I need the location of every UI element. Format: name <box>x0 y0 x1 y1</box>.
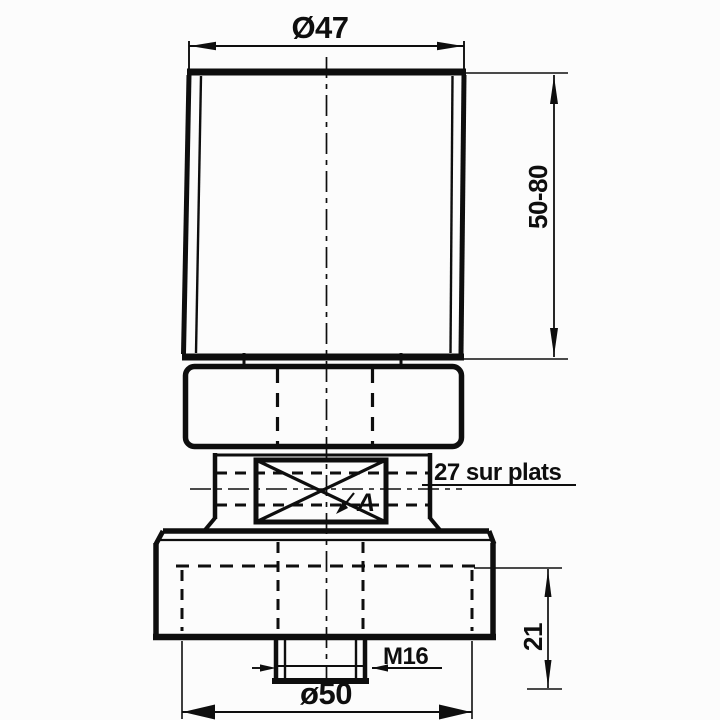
bore-diameter-label: ø50 <box>300 676 352 711</box>
technical-drawing-page: Ø47 50-80 <box>0 0 720 720</box>
height-range-label: 50-80 <box>523 165 553 229</box>
label-flats: 27 sur plats <box>422 459 576 486</box>
arrowhead-up <box>545 570 552 597</box>
top-diameter-label: Ø47 <box>291 10 348 45</box>
dim-height-range: 50-80 <box>464 73 568 359</box>
detail-marker-label: A <box>356 489 375 517</box>
part-housing-block <box>186 353 462 447</box>
arrowhead-down <box>550 328 558 356</box>
label-detail-a: A <box>336 489 375 517</box>
arrowhead-down <box>545 660 552 687</box>
arrowhead-left <box>190 42 216 50</box>
cavity-height-label: 21 <box>518 623 548 651</box>
dim-cavity-height: 21 <box>474 568 562 689</box>
part-base <box>153 531 496 637</box>
arrowhead-up <box>550 76 558 104</box>
arrowhead-right <box>437 42 463 50</box>
label-thread: M16 <box>252 643 442 672</box>
part-threaded-stud <box>272 637 369 681</box>
arrowhead-thread-right <box>372 664 388 671</box>
thread-label: M16 <box>383 643 428 670</box>
arrowhead-thread-left <box>260 664 276 671</box>
arrowhead-left <box>183 705 215 720</box>
flats-label: 27 sur plats <box>434 459 562 486</box>
machine-foot-drawing: Ø47 50-80 <box>0 0 720 720</box>
arrowhead-right <box>439 705 471 720</box>
part-top-cylinder <box>182 72 466 357</box>
part-spindle-flats <box>205 453 440 530</box>
dim-bore-diameter: ø50 <box>182 641 472 720</box>
